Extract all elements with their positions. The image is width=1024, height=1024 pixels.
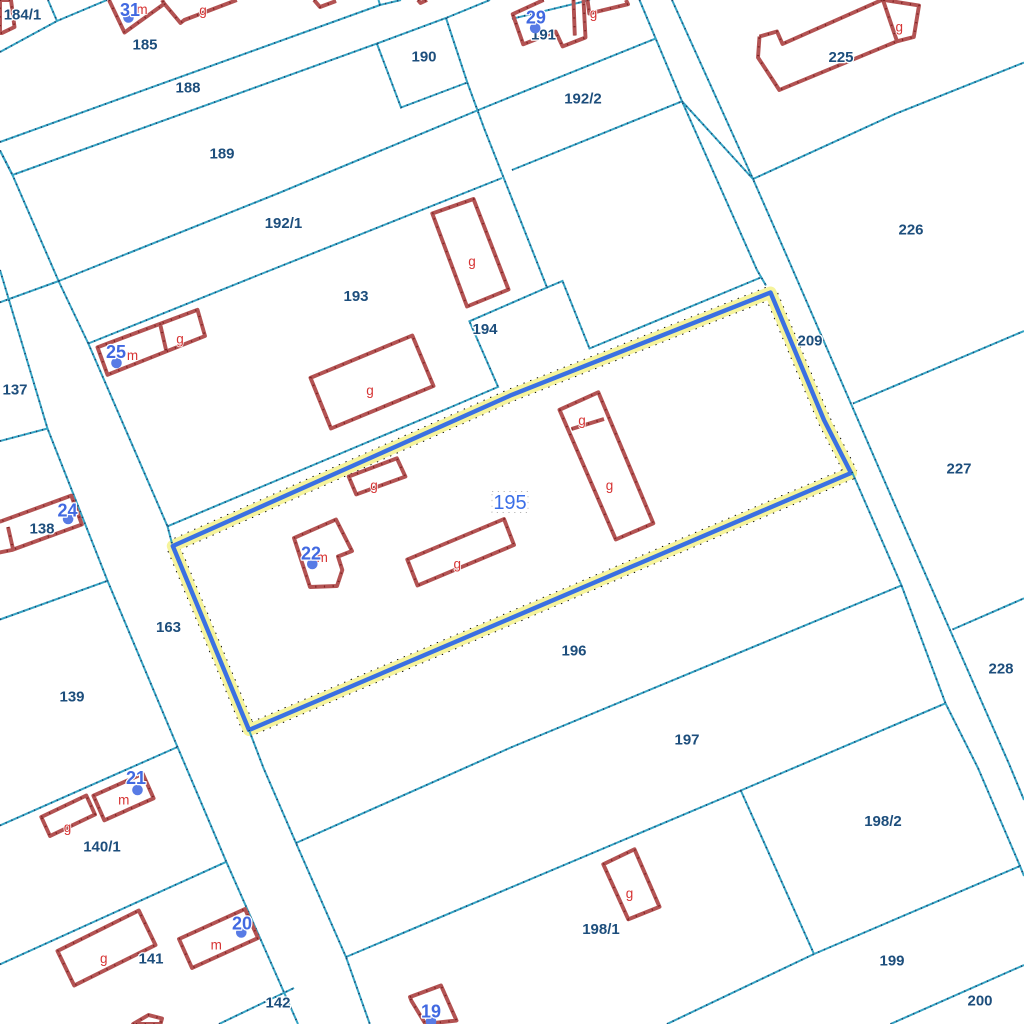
svg-text:g: g	[590, 6, 598, 21]
svg-text:198/1: 198/1	[582, 921, 620, 938]
svg-text:196: 196	[561, 643, 586, 660]
svg-text:227: 227	[946, 461, 971, 478]
svg-text:142: 142	[265, 995, 290, 1012]
svg-text:g: g	[454, 556, 462, 571]
svg-text:228: 228	[988, 661, 1013, 678]
svg-text:g: g	[100, 951, 108, 966]
svg-text:m: m	[118, 792, 129, 807]
svg-text:g: g	[370, 478, 378, 493]
svg-text:g: g	[64, 820, 72, 835]
svg-text:g: g	[626, 886, 634, 901]
svg-text:199: 199	[879, 953, 904, 970]
svg-text:225: 225	[828, 49, 853, 66]
svg-text:192/1: 192/1	[265, 215, 303, 232]
svg-text:20: 20	[232, 914, 252, 934]
svg-text:139: 139	[59, 689, 84, 706]
svg-text:24: 24	[57, 501, 77, 521]
svg-text:g: g	[606, 478, 614, 493]
svg-text:m: m	[127, 348, 138, 363]
svg-text:g: g	[176, 332, 184, 347]
svg-text:g: g	[578, 413, 586, 428]
svg-text:189: 189	[209, 146, 234, 163]
svg-text:190: 190	[411, 49, 436, 66]
svg-text:209: 209	[797, 333, 822, 350]
svg-text:185: 185	[132, 37, 157, 54]
svg-text:29: 29	[526, 8, 546, 28]
svg-text:193: 193	[343, 288, 368, 305]
svg-text:198/2: 198/2	[864, 813, 902, 830]
svg-text:g: g	[366, 383, 374, 398]
svg-text:194: 194	[472, 321, 498, 338]
svg-text:195: 195	[493, 492, 526, 514]
svg-text:g: g	[468, 254, 476, 269]
svg-text:141: 141	[138, 951, 163, 968]
svg-text:140/1: 140/1	[83, 839, 121, 856]
svg-text:25: 25	[106, 342, 126, 362]
svg-text:m: m	[211, 937, 222, 952]
svg-text:197: 197	[674, 732, 699, 749]
svg-text:137: 137	[2, 382, 27, 399]
svg-text:22: 22	[301, 544, 321, 564]
svg-text:184/1: 184/1	[4, 7, 42, 24]
svg-text:21: 21	[126, 768, 146, 788]
svg-text:200: 200	[967, 993, 992, 1010]
svg-text:192/2: 192/2	[564, 91, 602, 108]
svg-text:19: 19	[421, 1002, 441, 1022]
svg-text:31: 31	[120, 0, 140, 20]
svg-text:226: 226	[898, 222, 923, 239]
svg-text:g: g	[199, 3, 207, 18]
svg-text:163: 163	[156, 619, 181, 636]
svg-text:138: 138	[29, 521, 54, 538]
svg-text:188: 188	[175, 80, 200, 97]
svg-text:g: g	[896, 19, 904, 34]
